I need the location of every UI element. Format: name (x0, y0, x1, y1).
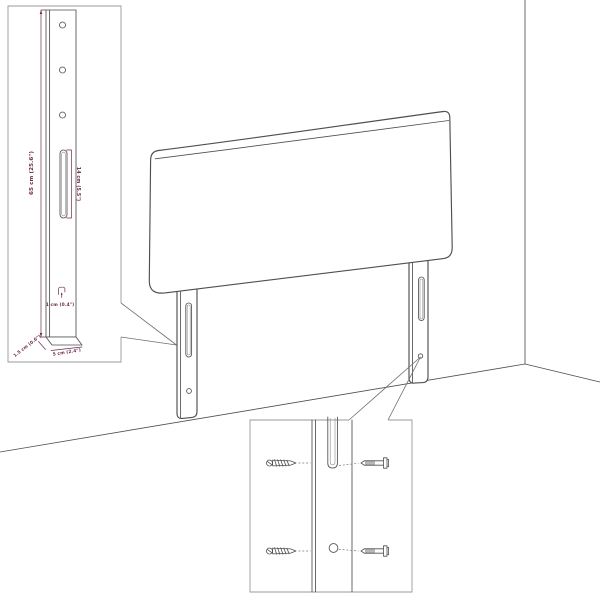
hole-closeup (329, 544, 338, 553)
slot-width-dimension-label: 1 cm (0.4") (46, 302, 74, 308)
machine-screw-icon-top (361, 458, 389, 468)
height-dimension: 65 cm (25.6") (29, 10, 46, 337)
leg-closeup (312, 417, 352, 592)
headboard-left-leg (177, 284, 197, 418)
headboard-right-leg (409, 244, 428, 383)
leg-bottom-face (46, 337, 82, 345)
wood-screw-icon-top (267, 460, 297, 467)
depth-dimension: 1.5 cm (0.6") (12, 334, 45, 359)
leg-closeup-edges (312, 420, 352, 592)
slot-closeup (328, 417, 338, 468)
leg-detail-leader-lines (121, 303, 177, 345)
product-diagram-headboard: 65 cm (25.6") 14 cm (5.5") 1 cm (0.4") 1… (0, 0, 600, 600)
width-dimension: 5 cm (2.4") (51, 347, 82, 358)
slot-closeup-inner (330, 418, 335, 465)
floor-line-right (525, 364, 600, 382)
height-dimension-label: 65 cm (25.6") (29, 151, 35, 195)
screw-detail-inset-border (250, 420, 412, 592)
headboard-panel (149, 111, 452, 293)
left-leg-screw-hole (187, 389, 192, 394)
headboard (149, 111, 452, 293)
machine-screw-icon-bottom (361, 546, 389, 556)
assembly-diagram: 65 cm (25.6") 14 cm (5.5") 1 cm (0.4") 1… (0, 0, 600, 600)
slot-length-dimension-label: 14 cm (5.5") (75, 167, 81, 201)
alignment-dash-machine-bottom (339, 549, 359, 551)
depth-dimension-label: 1.5 cm (0.6") (12, 334, 42, 359)
screw-detail-leader-lines (349, 357, 421, 420)
screw-detail-inset (250, 357, 421, 592)
wood-screw-icon-bottom (267, 548, 297, 555)
floor-line-left (0, 364, 525, 452)
alignment-dash-machine-top (339, 463, 359, 465)
